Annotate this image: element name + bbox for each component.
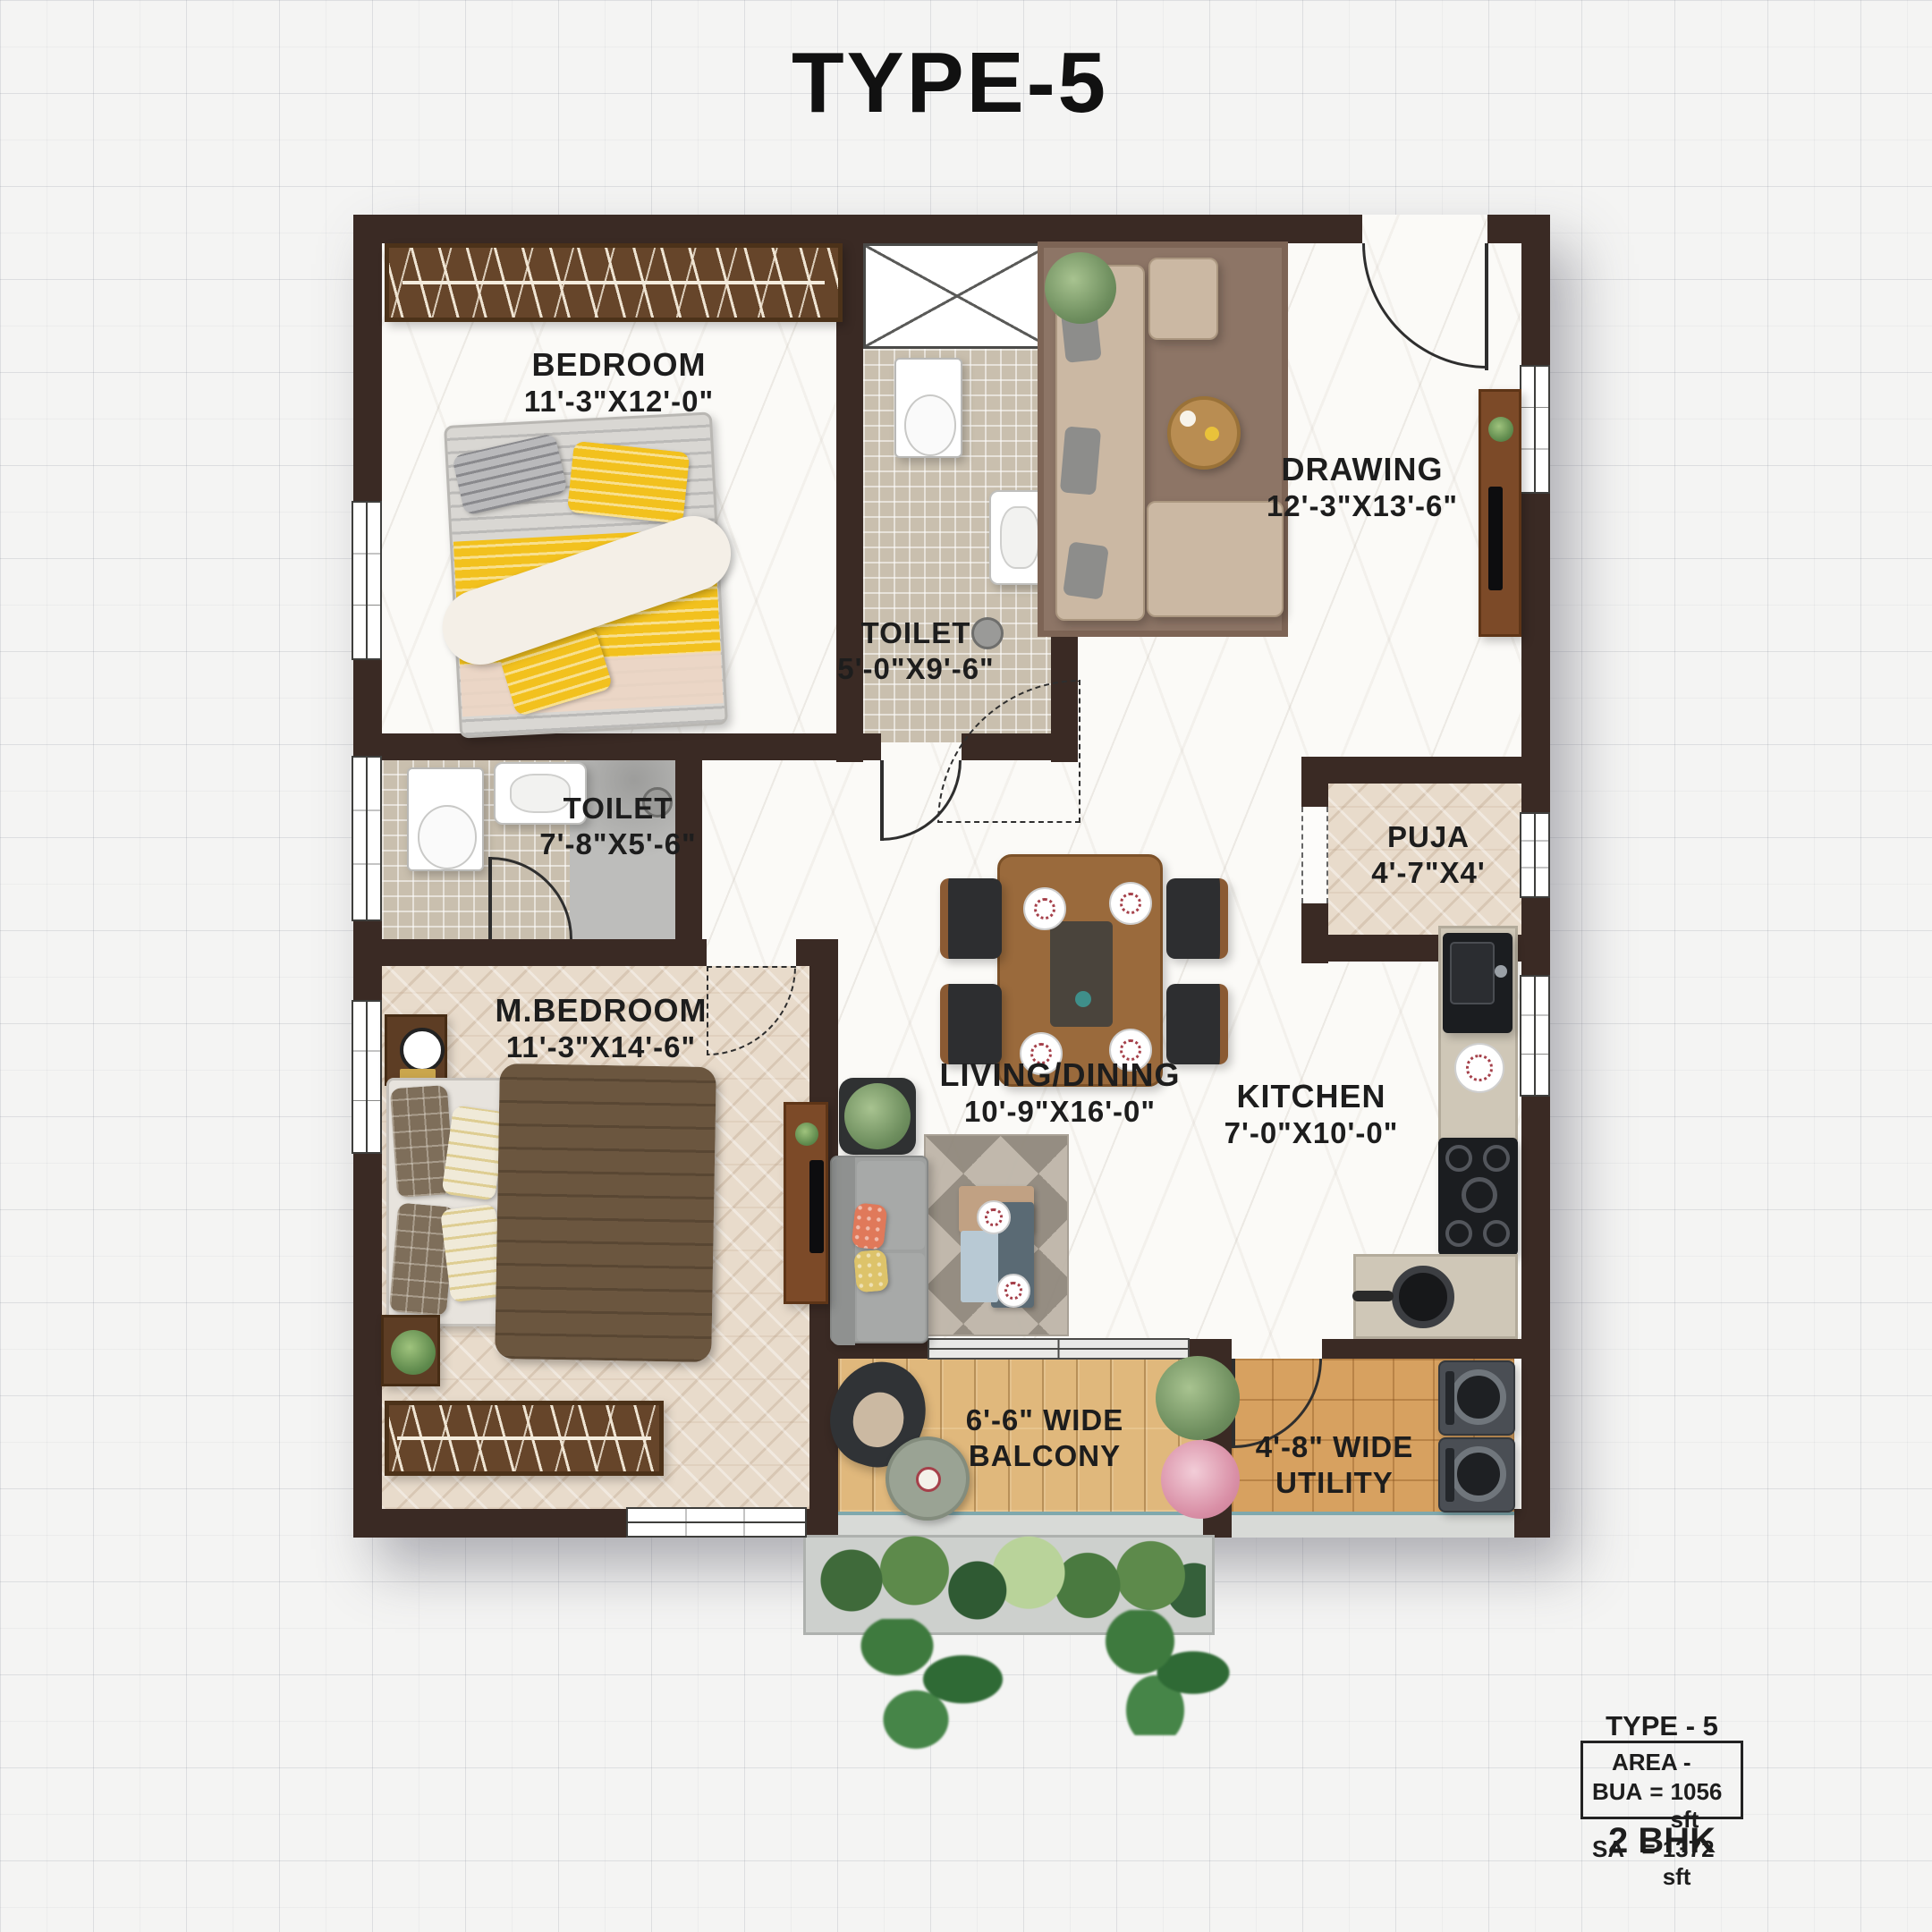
- kitchen-stove: [1438, 1138, 1518, 1256]
- window-kitchen: [1520, 975, 1550, 1097]
- info-unit-type: 2 BHK: [1580, 1821, 1743, 1861]
- toilet-top-label: TOILET 5'-0"X9'-6": [837, 615, 994, 686]
- wall-puja-left-upper: [1301, 757, 1328, 807]
- kitchen-sink: [1443, 933, 1513, 1033]
- washing-machine-1: [1438, 1360, 1515, 1436]
- sliding-door-balcony: [928, 1338, 1190, 1360]
- drawing-dims: 12'-3"X13'-6": [1267, 488, 1458, 524]
- coffee-plate-1: [977, 1200, 1011, 1234]
- puja-opening: [1301, 807, 1328, 903]
- dining-chair-1: [940, 878, 1002, 959]
- window-mbedroom: [352, 1000, 382, 1154]
- dining-plate-1: [1023, 887, 1066, 930]
- burner-2: [1483, 1145, 1510, 1172]
- basin-bowl: [1000, 506, 1039, 568]
- sink-faucet: [1495, 965, 1507, 978]
- tv-drawing: [1488, 487, 1503, 590]
- sofa-cushion-2: [1060, 426, 1101, 495]
- living-dining-dims: 10'-9"X16'-0": [939, 1094, 1180, 1130]
- sofa-cushion-3: [1063, 541, 1109, 600]
- balcony-line1: 6'-6" WIDE: [966, 1402, 1124, 1438]
- living-dining-label: LIVING/DINING 10'-9"X16'-0": [939, 1055, 1180, 1130]
- dining-cup: [1075, 991, 1091, 1007]
- balcony-topiary: [1156, 1356, 1240, 1440]
- wall-toilet-left-right: [675, 758, 702, 966]
- bed-mbedroom: [386, 1078, 710, 1326]
- balcony-table-cup: [916, 1467, 941, 1492]
- sofa-drawing-chaise: [1147, 501, 1284, 617]
- tv-console-drawing: [1479, 389, 1521, 637]
- wardrobe-bedroom: [385, 243, 843, 322]
- hanging-plant-left: [841, 1619, 1029, 1753]
- balcony-pink-plant: [1161, 1440, 1240, 1519]
- bedroom-label: BEDROOM 11'-3"X12'-0": [524, 345, 714, 419]
- wardrobe-rail: [402, 281, 825, 284]
- mbedroom-dims: 11'-3"X14'-6": [496, 1030, 708, 1065]
- bedroom-name: BEDROOM: [524, 345, 714, 384]
- balcony-label: 6'-6" WIDE BALCONY: [966, 1402, 1124, 1473]
- dining-table: [997, 854, 1163, 1087]
- table-runner: [1050, 921, 1113, 1027]
- puja-label: PUJA 4'-7"X4': [1371, 819, 1485, 890]
- nightstand-bottom: [381, 1315, 440, 1386]
- kitchen-plate: [1454, 1043, 1504, 1093]
- window-toilet-left: [352, 756, 382, 921]
- table-plate-1: [1180, 411, 1196, 427]
- kitchen-dims: 7'-0"X10'-0": [1224, 1115, 1399, 1151]
- bedroom-dims: 11'-3"X12'-0": [524, 384, 714, 419]
- sofa-drawing-ottoman: [1148, 258, 1218, 340]
- wall-bedroom-bottom: [353, 733, 865, 760]
- sofa-living-back: [832, 1157, 855, 1345]
- dining-plate-2: [1109, 882, 1152, 925]
- burner-1: [1445, 1145, 1472, 1172]
- toilet-top-door-leaf: [880, 760, 884, 841]
- bed-pillow-yellow-1: [567, 441, 691, 524]
- toilet-top-dims: 5'-0"X9'-6": [837, 651, 994, 687]
- balcony-chair-cushion: [846, 1385, 911, 1453]
- dining-chair-3: [1166, 878, 1228, 959]
- burner-center: [1462, 1177, 1497, 1213]
- utility-railing: [1232, 1512, 1514, 1538]
- info-area-heading: AREA -: [1592, 1749, 1733, 1776]
- puja-dims: 4'-7"X4': [1371, 855, 1485, 891]
- hanging-plant-right: [1087, 1610, 1239, 1735]
- wall-mbedroom-top-left: [353, 939, 707, 966]
- drawing-label: DRAWING 12'-3"X13'-6": [1267, 450, 1458, 524]
- coffee-table-glass: [961, 1231, 998, 1302]
- info-type-label: TYPE - 5: [1580, 1710, 1743, 1742]
- window-mbedroom-bottom: [626, 1507, 807, 1538]
- coffee-table-living: [957, 1186, 1039, 1311]
- utility-line1: 4'-8" WIDE: [1256, 1429, 1414, 1465]
- toilet-left-label: TOILET 7'-8"X5'-6": [539, 791, 696, 861]
- kitchen-label: KITCHEN 7'-0"X10'-0": [1224, 1077, 1399, 1151]
- wardrobe-mbedroom: [385, 1401, 664, 1476]
- wc-left-bowl: [418, 805, 477, 869]
- burner-3: [1445, 1220, 1472, 1247]
- toilet-left-name: TOILET: [539, 791, 696, 826]
- wall-utility-top: [1322, 1339, 1521, 1359]
- tv-console-mbedroom: [784, 1102, 828, 1304]
- sofa-living: [830, 1156, 928, 1343]
- balcony-table: [885, 1436, 970, 1521]
- kitchen-name: KITCHEN: [1224, 1077, 1399, 1115]
- mbedroom-label: M.BEDROOM 11'-3"X14'-6": [496, 991, 708, 1065]
- pan-handle: [1352, 1291, 1394, 1301]
- bed-bedroom: [444, 411, 728, 738]
- plant-living: [844, 1083, 911, 1149]
- kitchen-counter-bottom: [1353, 1254, 1518, 1339]
- wardrobe-mbedroom-rail: [397, 1436, 651, 1440]
- tv-mbedroom: [809, 1160, 824, 1253]
- toilet-left-dims: 7'-8"X5'-6": [539, 826, 696, 862]
- duct-shaft: [863, 243, 1051, 349]
- utility-line2: UTILITY: [1256, 1465, 1414, 1501]
- toilet-top-name: TOILET: [837, 615, 994, 651]
- mbed-console-plant: [795, 1123, 818, 1146]
- mbedroom-name: M.BEDROOM: [496, 991, 708, 1030]
- drawing-name: DRAWING: [1267, 450, 1458, 488]
- table-plate-2: [1205, 427, 1219, 441]
- alarm-clock: [400, 1028, 445, 1072]
- burner-4: [1483, 1220, 1510, 1247]
- washing-machine-2: [1438, 1437, 1515, 1513]
- wall-puja-top: [1301, 757, 1550, 784]
- window-bedroom-1: [352, 501, 382, 660]
- dining-chair-2: [940, 984, 1002, 1064]
- entrance-door-leaf: [1485, 243, 1488, 370]
- wall-bottom-right-corner: [1514, 1509, 1550, 1538]
- wall-toilet-door-jamb: [865, 733, 881, 760]
- wc-toilet-left: [407, 767, 484, 871]
- sofa-pillow-coral: [851, 1202, 887, 1250]
- floor-plan-page: { "title": "TYPE-5", "rooms": { "bedroom…: [0, 0, 1932, 1932]
- info-area-box: AREA - BUA = 1056 sft SA = 1372 sft: [1580, 1741, 1743, 1819]
- sofa-pillow-yellow: [853, 1250, 889, 1293]
- window-puja: [1520, 812, 1550, 898]
- frying-pan: [1392, 1266, 1454, 1328]
- wc-toilet-top: [894, 358, 962, 458]
- coffee-table-drawing: [1167, 396, 1241, 470]
- puja-name: PUJA: [1371, 819, 1485, 855]
- toilet-left-door-leaf: [488, 857, 492, 939]
- utility-label: 4'-8" WIDE UTILITY: [1256, 1429, 1414, 1500]
- console-plant: [1488, 417, 1513, 442]
- dining-chair-4: [1166, 984, 1228, 1064]
- nightstand-top: [385, 1014, 447, 1086]
- plant-drawing: [1045, 252, 1116, 324]
- living-dining-name: LIVING/DINING: [939, 1055, 1180, 1094]
- wc-bowl: [904, 394, 957, 456]
- sink-basin: [1450, 942, 1495, 1004]
- window-drawing: [1520, 365, 1550, 494]
- balcony-line2: BALCONY: [966, 1438, 1124, 1474]
- mbed-duvet: [495, 1063, 716, 1362]
- coffee-plate-2: [996, 1274, 1030, 1308]
- page-title: TYPE-5: [0, 34, 1900, 132]
- nightstand-plant: [391, 1330, 436, 1375]
